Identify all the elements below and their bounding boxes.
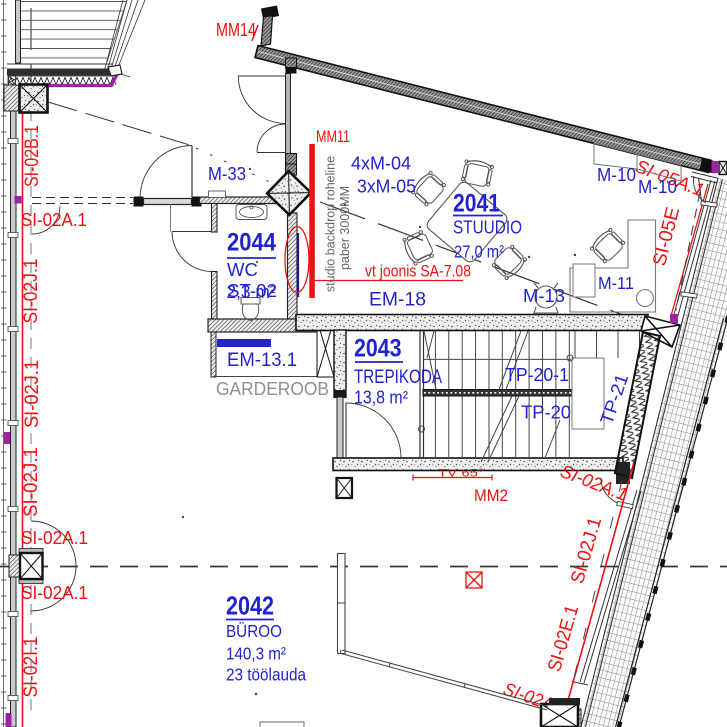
svg-text:studio backdrop roheline: studio backdrop roheline [324, 156, 338, 292]
svg-text:M-10: M-10 [597, 164, 636, 185]
svg-text:2041: 2041 [453, 190, 500, 218]
svg-text:4xM-04: 4xM-04 [351, 153, 411, 174]
svg-text:MM11: MM11 [316, 128, 350, 146]
svg-text:3xM-05: 3xM-05 [357, 176, 416, 197]
svg-text:M-10: M-10 [638, 176, 677, 197]
svg-text:SI-02J.1: SI-02J.1 [22, 360, 43, 428]
svg-text:M-13: M-13 [523, 285, 565, 306]
svg-text:GARDEROOB: GARDEROOB [216, 378, 329, 399]
svg-text:TREPIKODA: TREPIKODA [354, 367, 442, 388]
svg-text:MM2: MM2 [474, 486, 508, 505]
svg-text:2,3 m²: 2,3 m² [227, 282, 276, 302]
svg-text:EM-18: EM-18 [369, 290, 426, 311]
svg-text:M-11: M-11 [598, 273, 634, 293]
svg-text:WC: WC [227, 259, 258, 280]
svg-text:SI-02A.1: SI-02A.1 [21, 527, 88, 548]
svg-text:BÜROO: BÜROO [226, 621, 282, 641]
svg-text:M-33: M-33 [208, 163, 246, 184]
svg-text:SI-02J.1: SI-02J.1 [21, 259, 42, 324]
svg-text:vt joonis SA-7.08: vt joonis SA-7.08 [365, 262, 471, 281]
svg-text:2042: 2042 [226, 591, 274, 621]
svg-text:2043: 2043 [354, 335, 402, 363]
svg-text:TP-20-1: TP-20-1 [505, 364, 569, 385]
svg-text:MM14: MM14 [216, 20, 256, 40]
svg-text:SI-02A.1: SI-02A.1 [21, 209, 87, 230]
svg-text:27,0 m²: 27,0 m² [454, 242, 504, 262]
svg-text:paber 3000MM: paber 3000MM [338, 186, 352, 270]
svg-text:SI-02A.1: SI-02A.1 [21, 582, 88, 603]
svg-text:140,3 m²: 140,3 m² [226, 644, 286, 664]
svg-text:EM-13.1: EM-13.1 [227, 350, 297, 371]
svg-text:SI-02J.1: SI-02J.1 [21, 447, 42, 517]
svg-text:TV 65°: TV 65° [438, 468, 484, 480]
svg-text:SI-02B.1: SI-02B.1 [22, 125, 43, 187]
svg-text:STUUDIO: STUUDIO [453, 217, 522, 238]
svg-text:TP-20: TP-20 [521, 402, 571, 423]
svg-text:2044: 2044 [227, 229, 276, 257]
svg-text:SI-02I.1: SI-02I.1 [21, 637, 42, 698]
svg-text:23 töölauda: 23 töölauda [226, 665, 306, 685]
svg-text:13,8 m²: 13,8 m² [354, 388, 408, 408]
